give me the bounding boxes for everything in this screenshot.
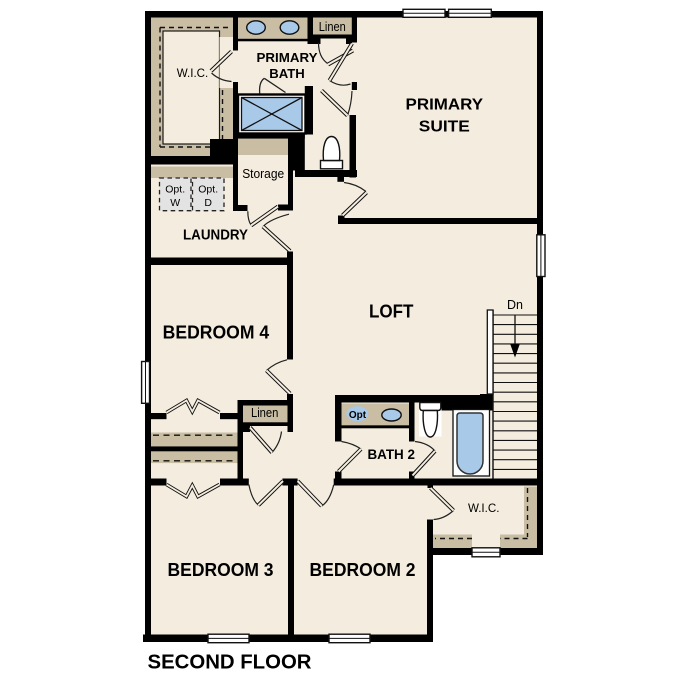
svg-text:Storage: Storage xyxy=(242,167,284,181)
svg-text:Opt.: Opt. xyxy=(165,184,185,196)
svg-text:LAUNDRY: LAUNDRY xyxy=(183,227,248,243)
svg-text:D: D xyxy=(204,197,212,209)
svg-text:BEDROOM 2: BEDROOM 2 xyxy=(310,560,416,580)
svg-text:SECOND FLOOR: SECOND FLOOR xyxy=(148,651,312,674)
svg-text:BEDROOM 3: BEDROOM 3 xyxy=(168,560,274,580)
svg-text:Linen: Linen xyxy=(251,406,279,420)
svg-text:BATH: BATH xyxy=(269,67,305,81)
svg-text:PRIMARY: PRIMARY xyxy=(257,51,319,65)
svg-text:W: W xyxy=(170,197,180,209)
svg-text:Opt.: Opt. xyxy=(198,184,218,196)
svg-text:BEDROOM 4: BEDROOM 4 xyxy=(163,323,270,343)
svg-text:LOFT: LOFT xyxy=(369,302,414,322)
svg-text:PRIMARY: PRIMARY xyxy=(406,97,484,114)
svg-text:Linen: Linen xyxy=(319,20,346,34)
svg-text:SUITE: SUITE xyxy=(419,119,470,136)
svg-text:W.I.C.: W.I.C. xyxy=(177,66,209,80)
svg-text:Opt: Opt xyxy=(349,410,367,421)
svg-text:W.I.C.: W.I.C. xyxy=(468,501,500,515)
svg-text:Dn: Dn xyxy=(507,298,523,312)
svg-text:BATH 2: BATH 2 xyxy=(367,447,415,462)
